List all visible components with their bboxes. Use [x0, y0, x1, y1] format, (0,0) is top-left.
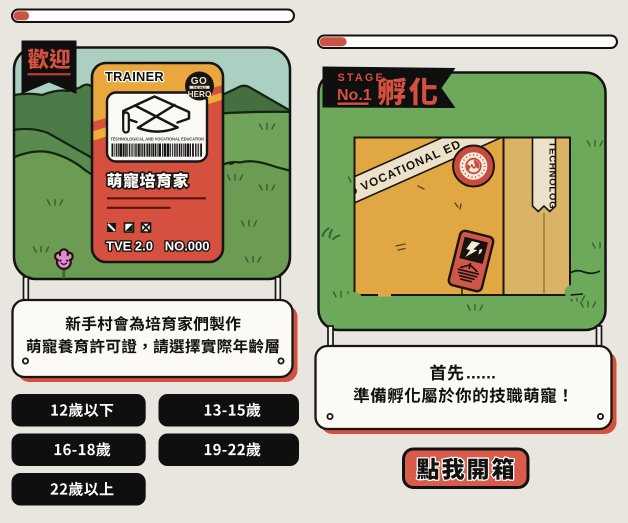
svg-text:TECHNOLOGICAL AND VOCATIONAL: TECHNOLOGICAL AND VOCATIONAL EDUCATION — [111, 137, 205, 142]
svg-text:TVE 2.0: TVE 2.0 — [106, 239, 153, 254]
svg-text:TECHNOLOG: TECHNOLOG — [547, 142, 558, 210]
svg-text:STAGE: STAGE — [338, 72, 385, 84]
svg-text:THE WILD: THE WILD — [193, 85, 207, 89]
svg-text:NO.000: NO.000 — [165, 239, 210, 254]
svg-text:......: ...... — [466, 364, 496, 383]
svg-text:HERO: HERO — [188, 90, 212, 99]
svg-text:TRAINER: TRAINER — [105, 69, 164, 84]
svg-text:No.1: No.1 — [337, 87, 372, 104]
